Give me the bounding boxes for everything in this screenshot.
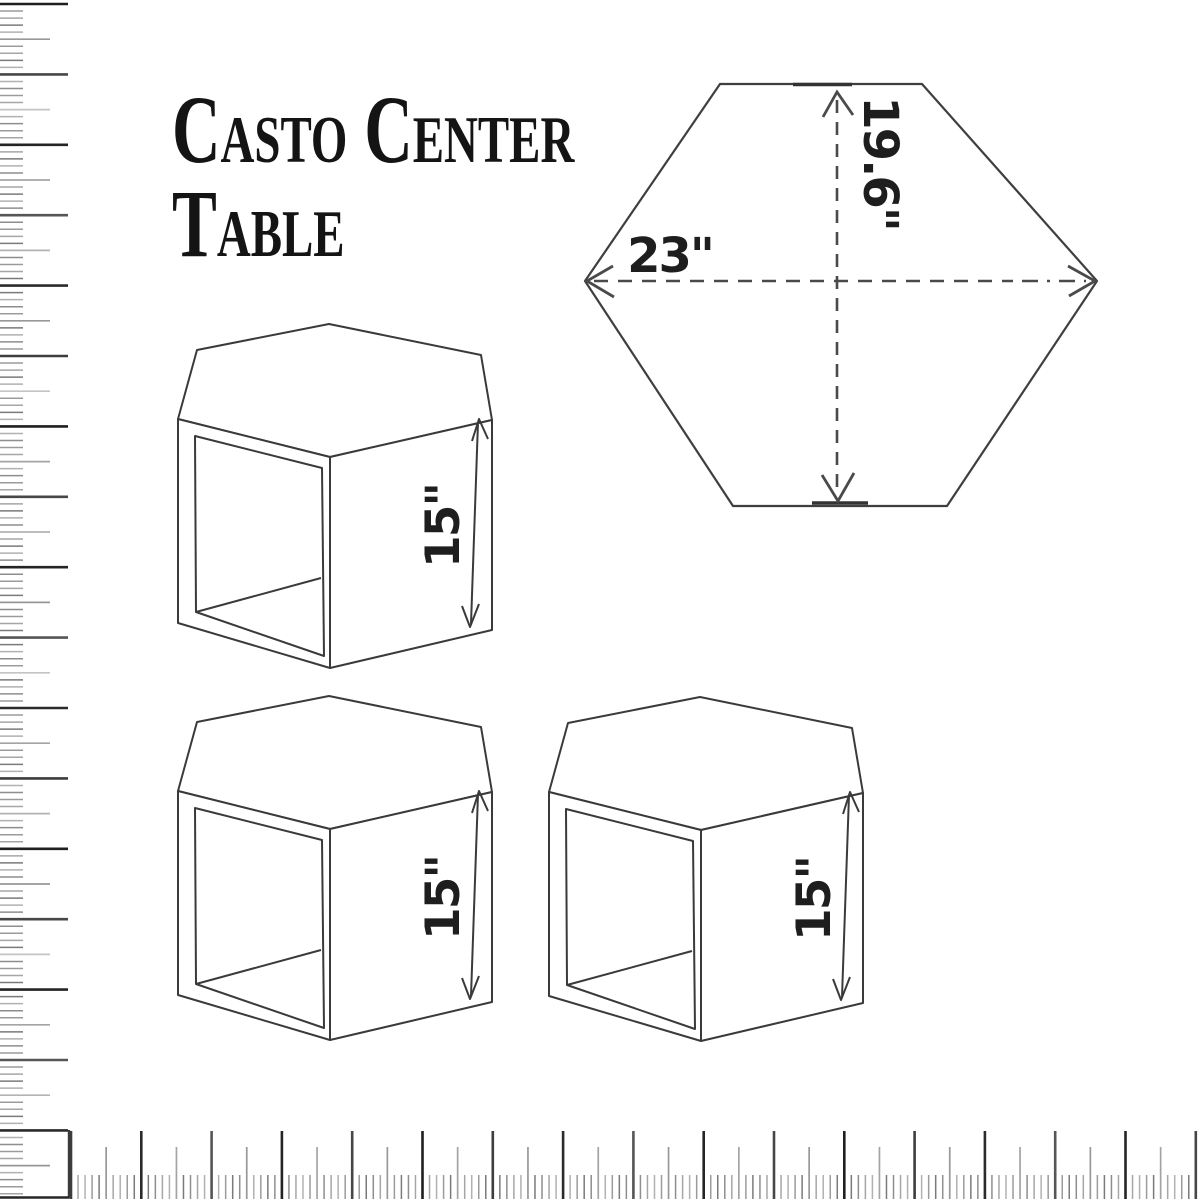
page-title: Casto Center Table	[172, 83, 574, 271]
hexagon-outline	[585, 84, 1097, 506]
table-height-label: 15"	[787, 857, 842, 941]
width-dimension-label: 23"	[627, 228, 713, 284]
product-dimension-sheet: 23" 19.6" 15" 15" 15" Casto Center Table	[0, 0, 1200, 1200]
table-drawing-1: 15"	[178, 324, 492, 668]
title-line-2: Table	[172, 177, 574, 271]
table-drawing-3: 15"	[549, 697, 863, 1041]
table-height-label: 15"	[416, 856, 471, 940]
height-dimension-label: 19.6"	[852, 96, 908, 229]
title-line-1: Casto Center	[172, 83, 574, 177]
left-ruler	[0, 4, 69, 1199]
table-drawing-2: 15"	[178, 696, 492, 1040]
table-height-label: 15"	[416, 484, 471, 568]
bottom-ruler	[71, 1131, 1196, 1199]
hexagon-top-view: 23" 19.6"	[585, 84, 1097, 506]
